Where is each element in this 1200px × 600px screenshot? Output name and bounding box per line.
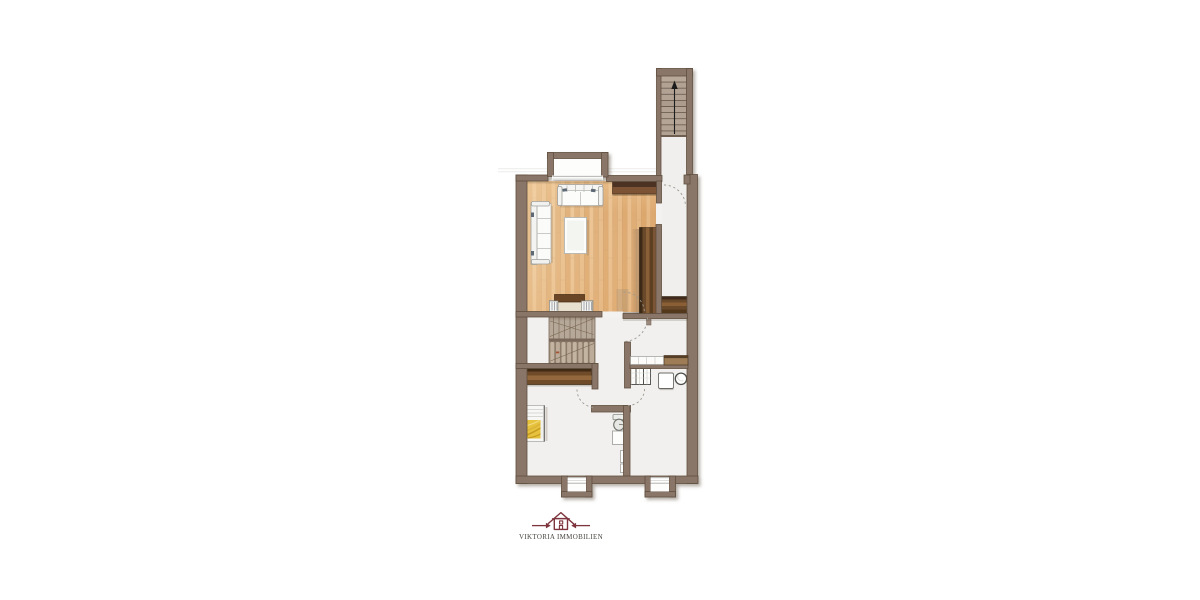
svg-text:VIKTORIA IMMOBILIEN: VIKTORIA IMMOBILIEN (519, 532, 603, 541)
